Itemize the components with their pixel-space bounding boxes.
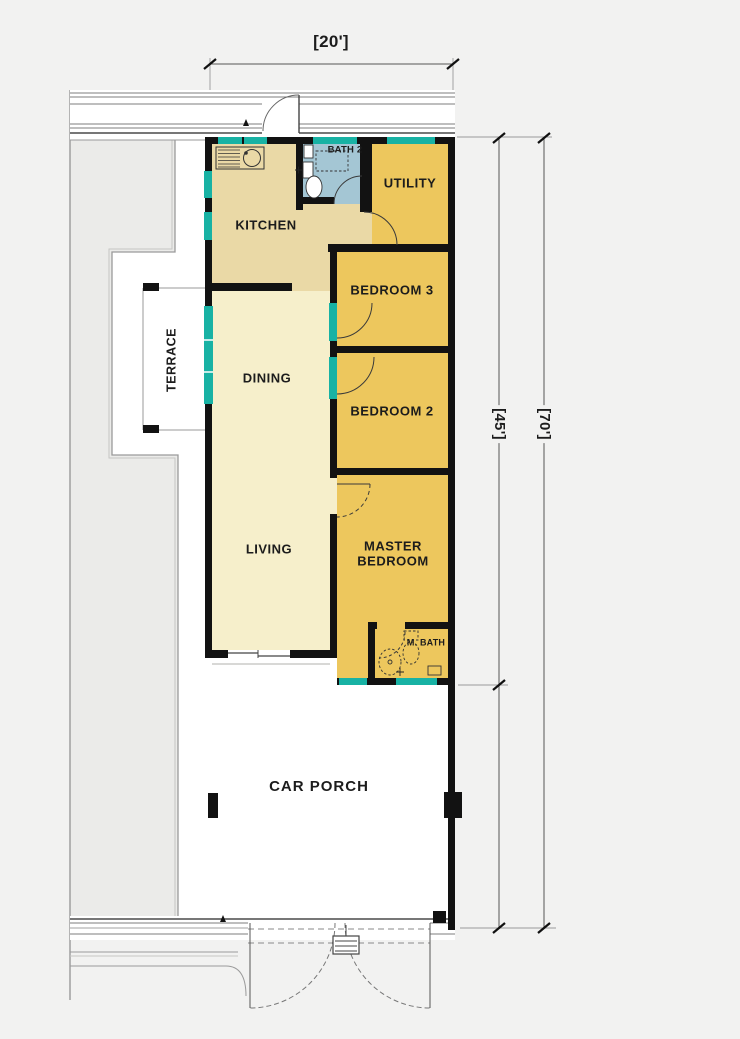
wall-kitchen-dining (205, 283, 292, 291)
window-bath2-top (313, 137, 357, 144)
gate-hinge-bracket (433, 911, 446, 923)
wall-bedrooms-top (328, 244, 455, 252)
wall-living-bottom-b (290, 650, 337, 658)
room-label-kitchen: KITCHEN (235, 217, 296, 232)
wall-hall-vert-d (330, 514, 337, 658)
bath2-cistern (303, 162, 313, 178)
room-label-living: LIVING (246, 541, 292, 556)
bath2-mirror (304, 145, 313, 158)
porch-post-right (444, 792, 462, 818)
room-label-mbath: M. BATH (407, 638, 445, 649)
living-sliding-door (228, 650, 290, 658)
door-panel-bedroom3 (329, 303, 337, 341)
utility-door-threshold (360, 212, 372, 245)
window-kitchen-left-1 (204, 171, 212, 198)
wall-hall-vert-c (330, 399, 337, 478)
wall-hall-vert-a (330, 244, 337, 303)
room-label-dining: DINING (243, 370, 292, 385)
window-utility-top (387, 137, 435, 144)
wall-living-bottom-a (205, 650, 228, 658)
dimension-label-lot-depth: [70'] (534, 405, 554, 443)
master-door-threshold (330, 478, 337, 516)
door-panel-bedroom2 (329, 357, 337, 399)
room-label-master-bedroom: MASTER BEDROOM (337, 539, 449, 570)
window-kitchen-top-2 (244, 137, 267, 144)
room-label-bedroom2: BEDROOM 2 (350, 403, 433, 418)
wall-bed3-bed2 (330, 346, 455, 353)
room-label-bedroom3: BEDROOM 3 (350, 282, 433, 297)
bath2-toilet (306, 176, 322, 198)
wall-bed2-master (330, 468, 455, 475)
floor-plan-drawing (0, 0, 740, 1039)
hallway-floor-2 (296, 244, 330, 291)
window-master-bottom (339, 678, 367, 685)
hallway-floor (296, 204, 360, 244)
room-label-bath2: BATH 2 (328, 144, 363, 155)
terrace-corner-bottom (143, 425, 159, 433)
porch-post-left (208, 793, 218, 818)
terrace-corner-top (143, 283, 159, 291)
bedroom3-floor (337, 252, 448, 346)
wall-mbath-top-b (405, 622, 455, 629)
dining-living-floor (212, 291, 330, 650)
utility-floor (372, 144, 448, 244)
room-label-terrace: TERRACE (165, 328, 180, 392)
window-kitchen-left-2 (204, 212, 212, 240)
room-label-carporch: CAR PORCH (269, 778, 369, 796)
sliding-door-terrace (204, 306, 213, 404)
dimension-label-building-depth: [45'] (489, 405, 509, 443)
floor-plan-page: [20'] [45'] [70'] KITCHEN BATH 2 UTILITY… (0, 0, 740, 1039)
window-mbath-bottom (396, 678, 437, 685)
wall-mbath-left (368, 622, 375, 685)
dimension-label-width: [20'] (313, 32, 349, 52)
window-kitchen-top-1 (218, 137, 242, 144)
wall-hall-vert-b (330, 341, 337, 357)
room-label-utility: UTILITY (384, 175, 437, 190)
